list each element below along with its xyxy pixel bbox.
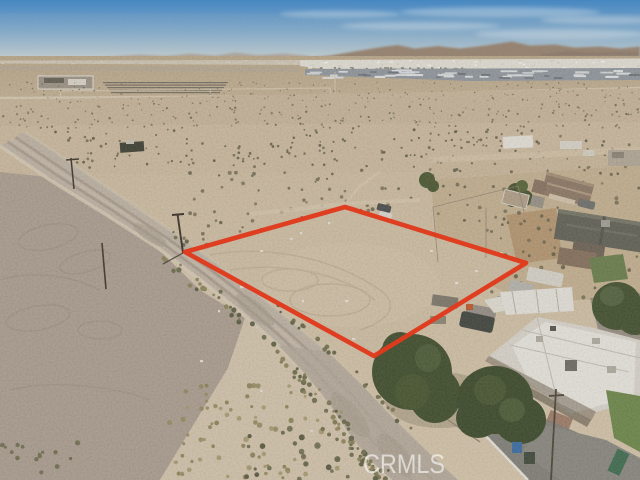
svg-text:CRMLS: CRMLS bbox=[363, 449, 445, 479]
